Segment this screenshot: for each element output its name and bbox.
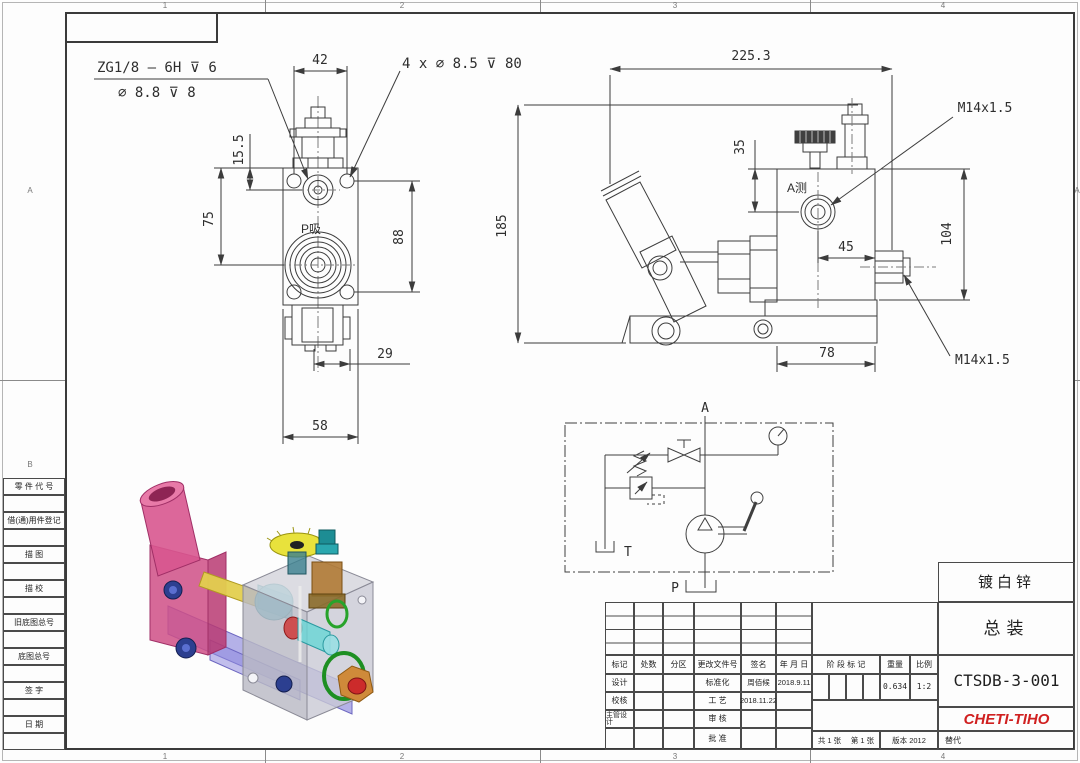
dim-78: 78 xyxy=(819,346,835,361)
hydraulic-schematic xyxy=(565,416,833,592)
sheet-count-cell: 共 1 张 第 1 张 xyxy=(812,731,880,750)
signature xyxy=(741,728,776,750)
weight-label: 重量 xyxy=(880,655,910,674)
leader-line xyxy=(904,275,950,356)
bracket-tab xyxy=(343,317,350,339)
company-logo-text: CHETI-TIHO xyxy=(938,707,1075,731)
revision-grid-col xyxy=(634,602,663,655)
shutoff-stem xyxy=(810,152,820,168)
blank-cell xyxy=(663,710,694,728)
render-bolt-core xyxy=(169,586,177,594)
rev-header: 处数 xyxy=(634,655,663,674)
role-label xyxy=(605,728,634,750)
thread-label-top: M14x1.5 xyxy=(958,101,1013,116)
drawing-sheet: 1 2 3 4 1 2 3 4 A B A 零 件 代 号 借(通)用件登记 描… xyxy=(0,0,1080,763)
base-bolt-bore xyxy=(758,324,768,334)
render-valve-stem xyxy=(319,530,335,544)
leader-line xyxy=(268,79,308,179)
dim-42: 42 xyxy=(312,53,328,68)
shutoff-valve-symbol xyxy=(668,448,684,462)
scale-value: 1:2 xyxy=(910,674,938,700)
dim-35: 35 xyxy=(733,139,748,155)
stage-cell xyxy=(812,674,829,700)
signature: 周佰候 xyxy=(741,674,776,692)
dim-75: 75 xyxy=(202,211,217,227)
role-label: 工 艺 xyxy=(694,692,741,710)
lever-arm xyxy=(744,502,756,531)
revision-grid-col xyxy=(663,602,694,655)
pump-triangle xyxy=(698,518,712,530)
block-step xyxy=(765,300,877,316)
render-bolt-core xyxy=(182,644,190,652)
render-outlet-cap xyxy=(348,678,366,694)
sign-date xyxy=(776,710,812,728)
signature: 2018.11.22 xyxy=(741,692,776,710)
blank-cell xyxy=(634,692,663,710)
scale-label: 比例 xyxy=(910,655,938,674)
port-label-p: P吸 xyxy=(301,222,321,236)
render-valve-nut xyxy=(316,544,338,554)
sign-date xyxy=(776,692,812,710)
rev-header: 标记 xyxy=(605,655,634,674)
blank-cell xyxy=(634,710,663,728)
blank-cell xyxy=(634,728,663,750)
blank-cell xyxy=(663,674,694,692)
relief-body xyxy=(845,124,865,157)
render-bolt xyxy=(276,676,292,692)
render-pump-body-side xyxy=(208,552,226,655)
render-relief-body xyxy=(312,562,342,596)
rev-header: 年 月 日 xyxy=(776,655,812,674)
schematic-port-p: P xyxy=(671,581,679,596)
blank-cell xyxy=(663,692,694,710)
bracket-foot xyxy=(326,345,336,351)
shutoff-knob xyxy=(795,131,835,143)
stage-cell xyxy=(863,674,880,700)
role-label: 批 准 xyxy=(694,728,741,750)
dim-58: 58 xyxy=(312,419,328,434)
base-bevel xyxy=(622,316,630,343)
sign-date: 2018.9.11 xyxy=(776,674,812,692)
port-label-a: A测 xyxy=(787,181,807,195)
revision-grid-col xyxy=(741,602,776,655)
port-p-symbol xyxy=(686,580,716,592)
pipe-lip xyxy=(601,171,639,191)
render-hole xyxy=(248,673,258,683)
version-cell: 版本 2012 xyxy=(880,731,938,750)
stage-cell xyxy=(846,674,863,700)
render-handwheel-hub xyxy=(290,541,304,549)
role-label: 审 核 xyxy=(694,710,741,728)
side-view xyxy=(601,98,936,345)
render-wheel-stem xyxy=(288,552,306,574)
blank-cell xyxy=(663,728,694,750)
blank-cell xyxy=(812,602,938,655)
thread-label-side: M14x1.5 xyxy=(955,353,1010,368)
dim-15-5: 15.5 xyxy=(232,134,247,165)
render-spool-end xyxy=(323,635,339,655)
rev-header: 更改文件号 xyxy=(694,655,741,674)
rev-header: 签名 xyxy=(741,655,776,674)
role-label: 校核 xyxy=(605,692,634,710)
side-dimensions xyxy=(518,69,970,372)
role-label: 标准化 xyxy=(694,674,741,692)
gauge-needle xyxy=(778,429,784,436)
pivot xyxy=(652,317,680,345)
lever-housing xyxy=(640,236,706,322)
blank-cell xyxy=(634,674,663,692)
lever-knob xyxy=(751,492,763,504)
replace-cell: 替代 xyxy=(938,731,1075,750)
dim-185: 185 xyxy=(495,214,510,237)
mount-hole xyxy=(287,174,301,188)
schematic-port-a: A xyxy=(701,401,709,416)
dim-88: 88 xyxy=(392,229,407,245)
pivot-bore xyxy=(653,261,667,275)
title-block: 标记 处数 分区 更改文件号 签名 年 月 日 设计 标准化 周佰候 2018.… xyxy=(605,602,1075,750)
pipe-lip xyxy=(603,176,641,196)
sign-date xyxy=(776,728,812,750)
stage-mark-label: 阶 段 标 记 xyxy=(812,655,880,674)
mount-hole xyxy=(340,174,354,188)
signature xyxy=(741,710,776,728)
render-3d xyxy=(137,476,373,720)
relief-ear xyxy=(340,129,346,137)
note-pattern: 4 x ∅ 8.5 ⊽ 80 xyxy=(402,56,522,72)
dim-104: 104 xyxy=(940,222,955,246)
note-hole: ∅ 8.8 ⊽ 8 xyxy=(118,85,196,101)
role-label: 主管设计 xyxy=(605,710,634,728)
revision-grid-col xyxy=(605,602,634,655)
shutoff-valve-symbol xyxy=(684,448,700,462)
note-thread: ZG1/8 — 6H ⊽ 6 xyxy=(97,60,217,76)
relief-flow-arrow xyxy=(635,482,647,494)
blank-cell xyxy=(812,700,938,731)
base-bolt xyxy=(754,320,772,338)
rev-header: 分区 xyxy=(663,655,694,674)
leader-line xyxy=(350,71,400,177)
relief-cap xyxy=(848,104,862,115)
schematic-tank-t: T xyxy=(624,545,632,560)
stage-cell xyxy=(829,674,846,700)
coupling-hex xyxy=(718,241,750,293)
coupling-flange xyxy=(750,236,777,302)
pivot-bore xyxy=(658,323,674,339)
shutoff-nut xyxy=(803,143,827,152)
sheet-total: 共 1 张 xyxy=(818,737,841,745)
revision-grid-col xyxy=(776,602,812,655)
revision-grid-col xyxy=(694,602,741,655)
valve-block-front xyxy=(283,168,358,305)
dim-45: 45 xyxy=(838,240,854,255)
finish-note: 镀白锌 xyxy=(938,562,1075,602)
bracket-tab xyxy=(285,317,292,339)
sheet-number: 第 1 张 xyxy=(851,737,874,745)
pivot xyxy=(648,256,672,280)
drawing-number: CTSDB-3-001 xyxy=(938,655,1075,707)
relief-adjust-arrow xyxy=(627,453,650,473)
front-dimensions xyxy=(94,66,420,444)
dim-29: 29 xyxy=(377,347,393,362)
weight-value: 0.634 xyxy=(880,674,910,700)
dim-225-3: 225.3 xyxy=(731,49,770,64)
role-label: 设计 xyxy=(605,674,634,692)
render-hole xyxy=(358,596,366,604)
drawing-title: 总装 xyxy=(938,602,1075,655)
relief-nut xyxy=(842,115,868,124)
